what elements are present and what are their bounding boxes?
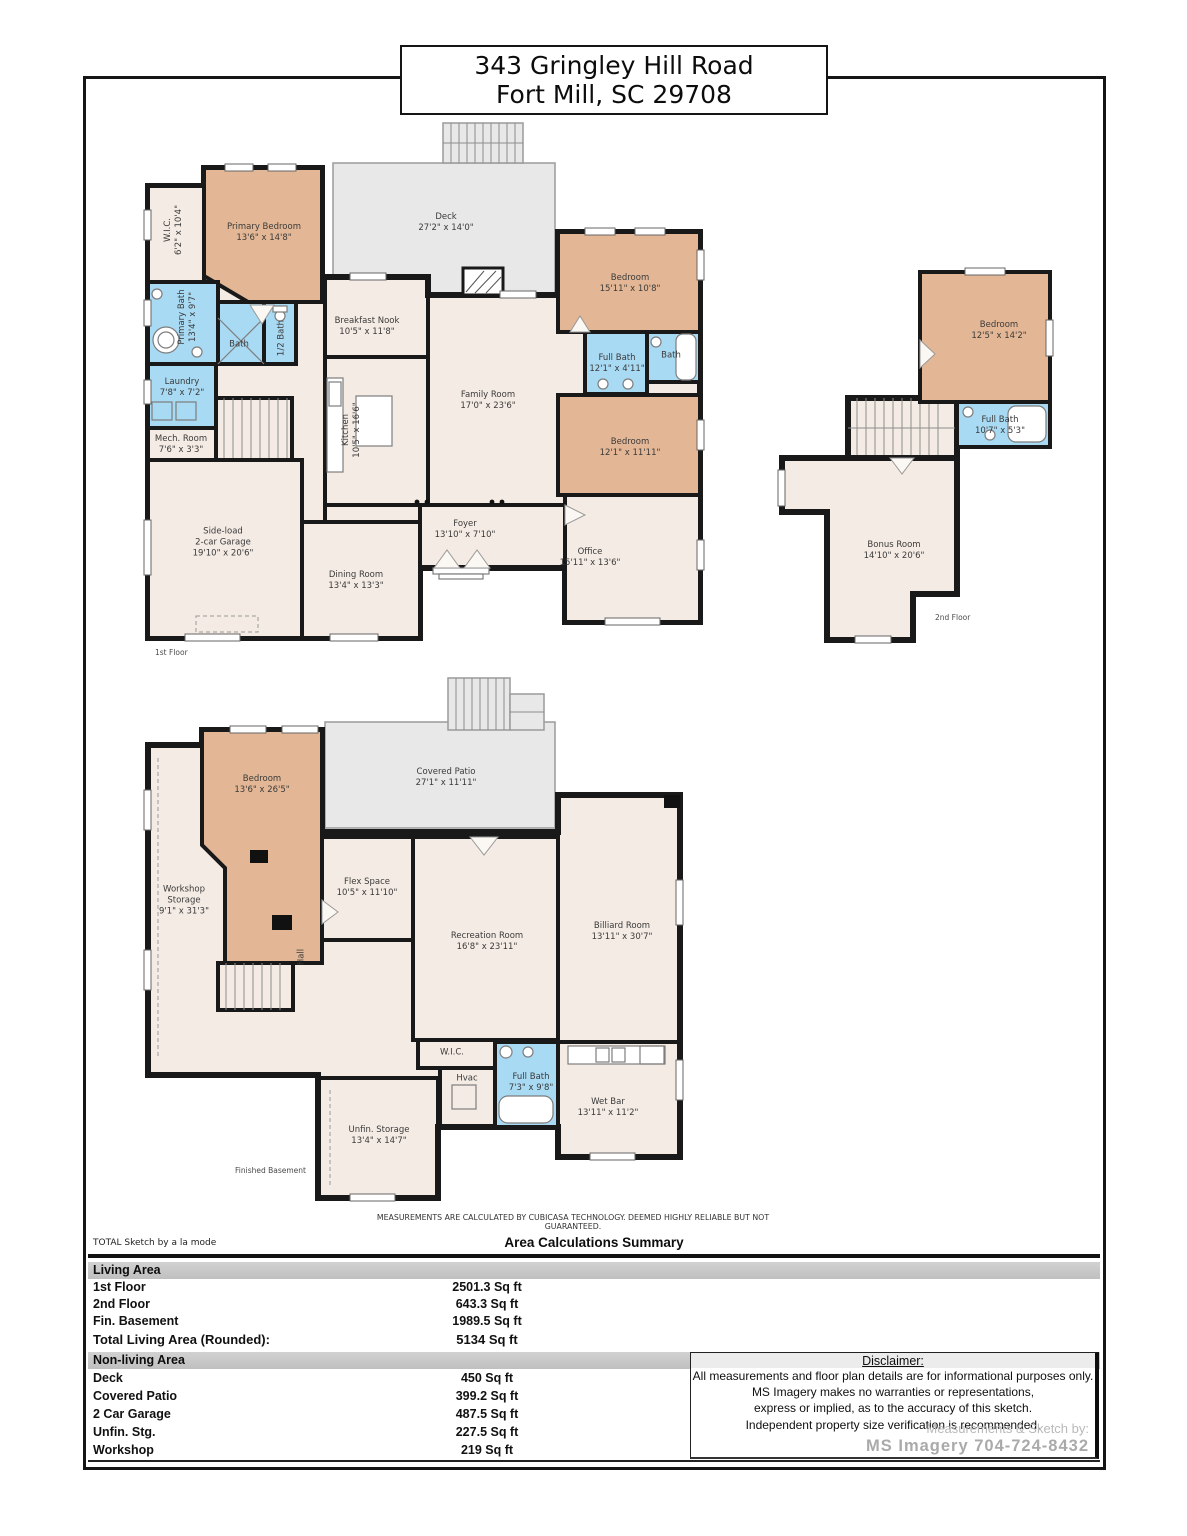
disclaimer-line: All measurements and floor plan details … [691, 1368, 1095, 1384]
room-label-kitchen: Kitchen10'5" x 16'6" [341, 402, 363, 457]
room-label-laundry: Laundry7'8" x 7'2" [160, 377, 205, 399]
caption-basement: Finished Basement [235, 1166, 306, 1175]
caption-first-floor: 1st Floor [155, 648, 188, 657]
room-label-deck: Deck27'2" x 14'0" [418, 212, 473, 234]
disclaimer-heading: Disclaimer: [691, 1353, 1095, 1368]
table-row: Fin. Basement1989.5 Sq ft [88, 1313, 1100, 1330]
caption-second-floor: 2nd Floor [935, 613, 970, 622]
disclaimer-line: MS Imagery makes no warranties or repres… [691, 1384, 1095, 1400]
room-label-billiard: Billiard Room13'11" x 30'7" [592, 921, 653, 943]
credit-label: Measurements & Sketch by: [866, 1422, 1089, 1437]
room-label-bedroom-b: Bedroom12'1" x 11'11" [600, 437, 661, 459]
room-label-recreation: Recreation Room16'8" x 23'11" [451, 931, 523, 953]
room-label-family-room: Family Room17'0" x 23'6" [460, 390, 515, 412]
room-label-primary-bedroom: Primary Bedroom13'6" x 14'8" [227, 222, 301, 244]
room-label-hvac: Hvac [456, 1073, 477, 1084]
credit-value: MS Imagery 704-724-8432 [866, 1437, 1089, 1456]
fireplace [463, 268, 503, 295]
room-label-unfin-storage: Unfin. Storage13'4" x 14'7" [348, 1125, 409, 1147]
room-label-wic-bsmt: W.I.C. [440, 1047, 464, 1058]
room-label-wic: W.I.C.6'2" x 10'4" [163, 205, 185, 255]
address-line-2: Fort Mill, SC 29708 [496, 80, 732, 110]
room-label-half-bath: 1/2 Bath [276, 320, 287, 356]
address-title-box: 343 Gringley Hill Road Fort Mill, SC 297… [400, 45, 828, 115]
stairs-first [216, 398, 292, 460]
sketch-credit: Measurements & Sketch by: MS Imagery 704… [866, 1422, 1089, 1456]
room-label-breakfast-nook: Breakfast Nook10'5" x 11'8" [335, 316, 400, 338]
disclaimer-line: express or implied, as to the accuracy o… [691, 1400, 1095, 1416]
room-label-office: Office15'11" x 13'6" [560, 547, 621, 569]
room-label-dining: Dining Room13'4" x 13'3" [328, 570, 383, 592]
room-label-mech-room: Mech. Room7'6" x 3'3" [155, 434, 207, 456]
room-label-covered-patio: Covered Patio27'1" x 11'11" [416, 767, 477, 789]
patio-stairs [448, 678, 510, 730]
summary-top-rule [88, 1254, 1100, 1258]
room-label-primary-bath: Primary Bath13'4" x 9'7" [177, 289, 199, 344]
room-label-workshop: WorkshopStorage9'1" x 31'3" [159, 884, 209, 917]
summary-title: Area Calculations Summary [88, 1235, 1100, 1250]
room-label-garage: Side-load2-car Garage19'10" x 20'6" [193, 526, 254, 559]
living-area-header: Living Area [88, 1262, 1100, 1279]
room-label-flex-space: Flex Space10'5" x 11'10" [337, 877, 398, 899]
room-label-bedroom-2nd: Bedroom12'5" x 14'2" [971, 320, 1026, 342]
room-label-full-bath-2nd: Full Bath10'7" x 5'3" [975, 415, 1025, 437]
total-living-row: Total Living Area (Rounded):5134 Sq ft [88, 1330, 1100, 1350]
wet-bar-counter [568, 1046, 665, 1064]
room-label-foyer: Foyer13'10" x 7'10" [435, 519, 496, 541]
room-label-bath-b: Bath [661, 350, 681, 361]
room-label-full-bath-a: Full Bath12'1" x 4'11" [589, 353, 644, 375]
tub-bsmt [499, 1096, 553, 1123]
room-label-hall: Hall [296, 949, 307, 965]
table-row: 2nd Floor643.3 Sq ft [88, 1296, 1100, 1313]
room-label-bonus-room: Bonus Room14'10" x 20'6" [864, 540, 925, 562]
table-row: 1st Floor2501.3 Sq ft [88, 1279, 1100, 1296]
disclaimer-box: Disclaimer: All measurements and floor p… [690, 1352, 1099, 1459]
room-label-bedroom-a: Bedroom15'11" x 10'8" [600, 273, 661, 295]
summary-bottom-rule [88, 1460, 1100, 1462]
cubicasa-note: MEASUREMENTS ARE CALCULATED BY CUBICASA … [358, 1213, 788, 1231]
room-label-wet-bar: Wet Bar13'11" x 11'2" [578, 1097, 639, 1119]
soaking-tub [153, 327, 179, 353]
floor-plan-sheet: 343 Gringley Hill Road Fort Mill, SC 297… [0, 0, 1187, 1536]
address-line-1: 343 Gringley Hill Road [474, 51, 753, 81]
room-label-full-bath-bsmt: Full Bath7'3" x 9'8" [509, 1072, 554, 1094]
room-label-bath-a: Bath [229, 339, 249, 350]
room-label-bedroom-bsmt: Bedroom13'6" x 26'5" [234, 774, 289, 796]
